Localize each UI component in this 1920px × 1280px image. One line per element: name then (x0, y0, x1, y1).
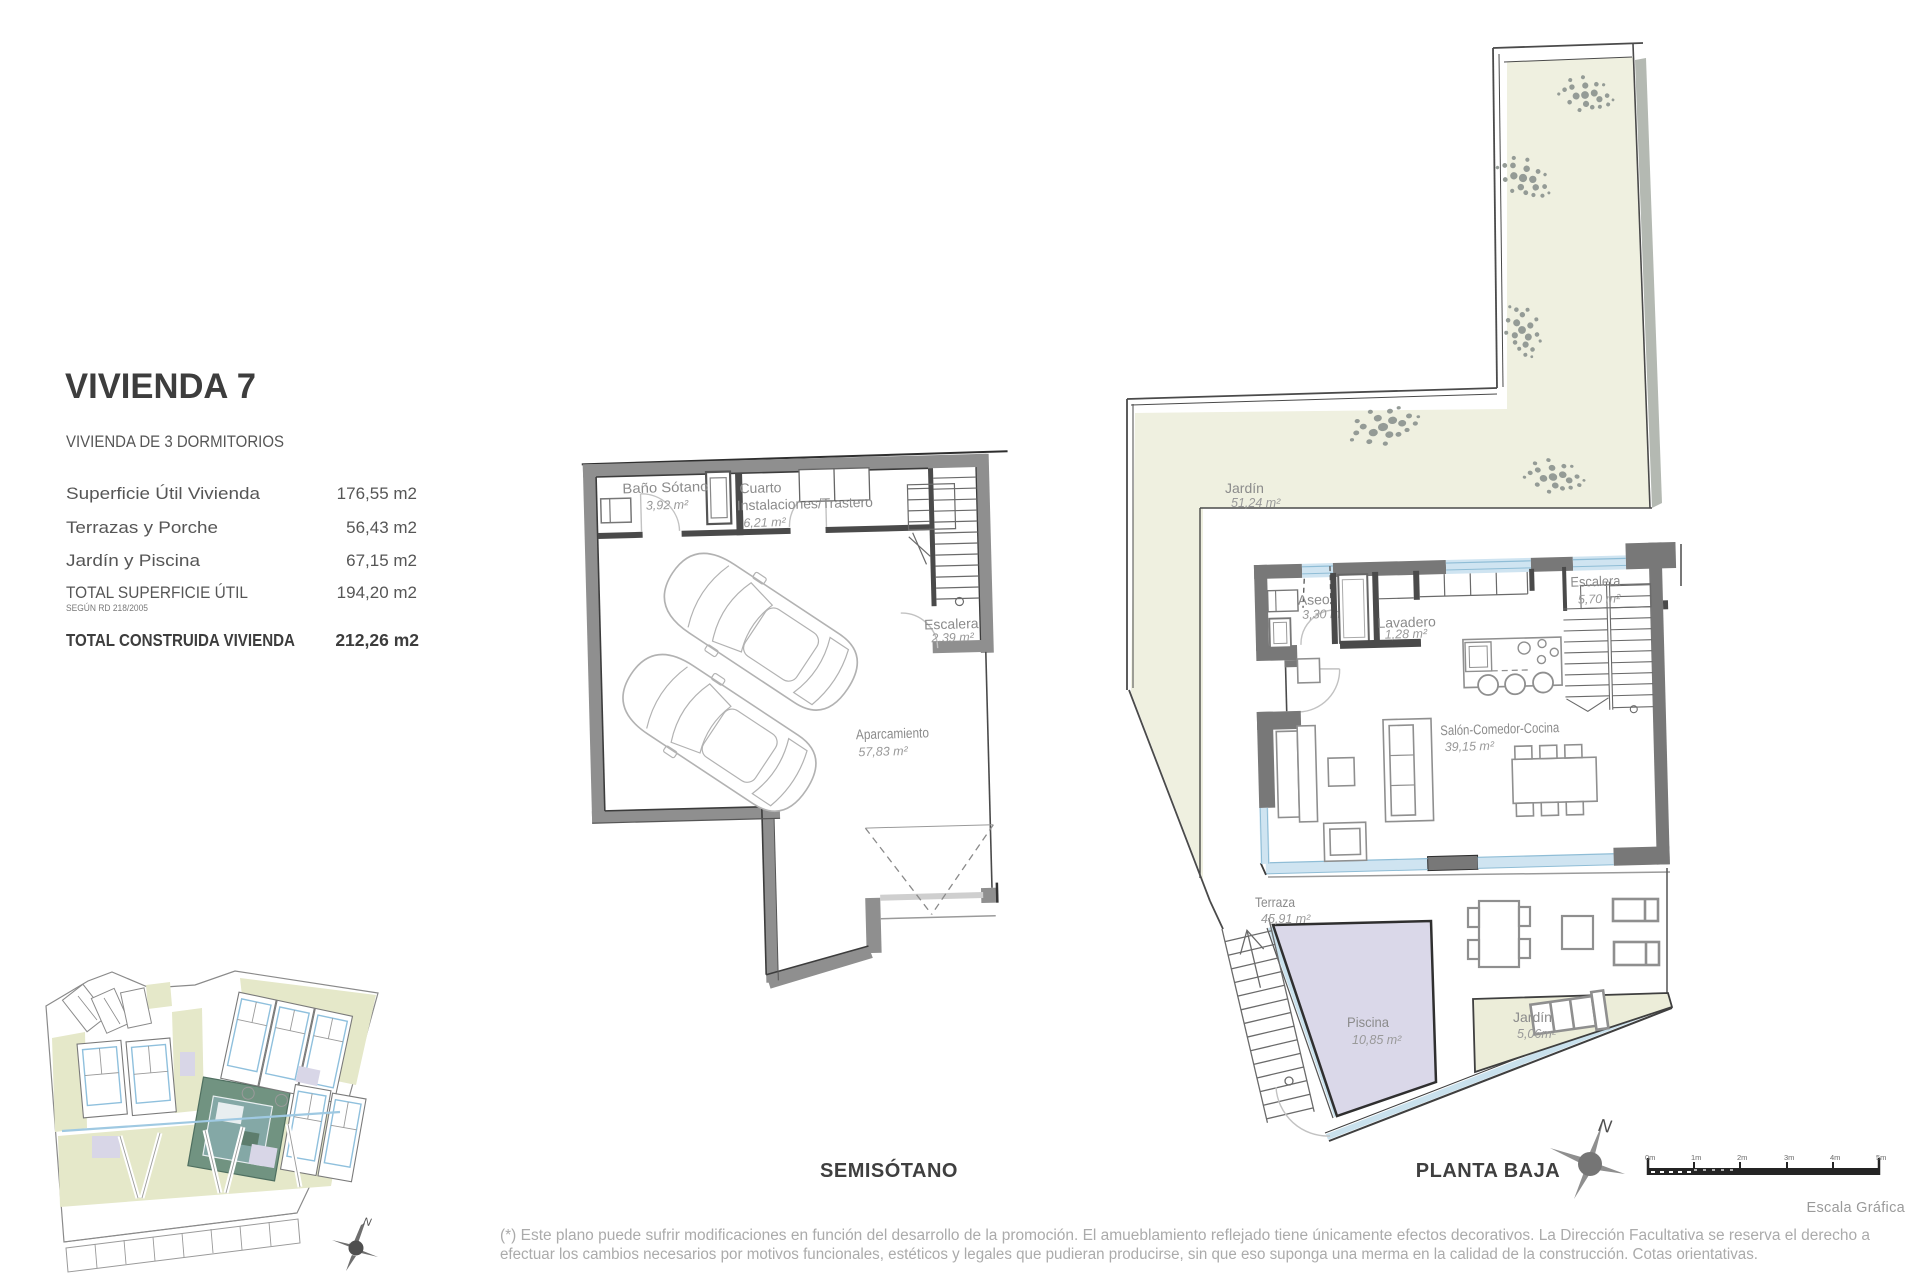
svg-text:194,20 m2: 194,20 m2 (337, 583, 417, 602)
svg-text:Instalaciones/Trastero: Instalaciones/Trastero (737, 494, 874, 514)
svg-text:Cuarto: Cuarto (739, 479, 782, 496)
svg-text:1m: 1m (1691, 1153, 1701, 1162)
svg-text:Aseo: Aseo (1298, 591, 1331, 608)
svg-text:(*) Este plano puede sufrir mo: (*) Este plano puede sufrir modificacion… (500, 1227, 1870, 1244)
svg-text:1,28 m²: 1,28 m² (1385, 627, 1429, 642)
svg-text:0m: 0m (1645, 1153, 1655, 1162)
svg-text:Terrazas y Porche: Terrazas y Porche (66, 518, 218, 537)
svg-text:3m: 3m (1784, 1153, 1794, 1162)
svg-text:Jardín: Jardín (1225, 480, 1264, 496)
svg-text:5m: 5m (1876, 1153, 1886, 1162)
svg-text:TOTAL SUPERFICIE ÚTIL: TOTAL SUPERFICIE ÚTIL (66, 583, 248, 602)
svg-text:51,24 m²: 51,24 m² (1231, 496, 1281, 510)
svg-text:Piscina: Piscina (1347, 1014, 1389, 1030)
svg-text:2m: 2m (1737, 1153, 1747, 1162)
svg-text:Terraza: Terraza (1255, 894, 1295, 910)
svg-text:212,26 m2: 212,26 m2 (335, 630, 419, 650)
svg-text:Aparcamiento: Aparcamiento (856, 724, 930, 742)
svg-text:6,21 m²: 6,21 m² (743, 515, 787, 530)
svg-text:3,92 m²: 3,92 m² (646, 498, 690, 513)
svg-text:efectuar los cambios necesario: efectuar los cambios necesarios por moti… (500, 1246, 1758, 1263)
svg-text:Escala Gráfica: Escala Gráfica (1807, 1200, 1906, 1216)
svg-text:PLANTA BAJA: PLANTA BAJA (1416, 1160, 1560, 1182)
svg-text:Salón-Comedor-Cocina: Salón-Comedor-Cocina (1440, 719, 1560, 738)
svg-text:67,15 m2: 67,15 m2 (346, 551, 417, 570)
svg-text:SEMISÓTANO: SEMISÓTANO (820, 1158, 958, 1182)
svg-text:Superficie Útil Vivienda: Superficie Útil Vivienda (66, 484, 261, 503)
svg-text:56,43 m2: 56,43 m2 (346, 518, 417, 537)
svg-text:VIVIENDA 7: VIVIENDA 7 (65, 367, 256, 406)
svg-text:N: N (362, 1216, 372, 1229)
svg-text:Jardín: Jardín (1513, 1009, 1552, 1025)
svg-text:5,06m²: 5,06m² (1517, 1027, 1557, 1041)
svg-text:Jardín y Piscina: Jardín y Piscina (66, 551, 201, 570)
svg-text:Escalera: Escalera (1570, 572, 1621, 589)
svg-text:VIVIENDA DE 3 DORMITORIOS: VIVIENDA DE 3 DORMITORIOS (66, 432, 284, 451)
svg-text:39,15 m²: 39,15 m² (1445, 739, 1496, 754)
svg-text:57,83 m²: 57,83 m² (858, 744, 909, 759)
svg-text:176,55 m2: 176,55 m2 (337, 484, 417, 503)
svg-text:N: N (1597, 1115, 1614, 1137)
svg-text:2,39 m²: 2,39 m² (930, 630, 975, 645)
svg-text:Baño Sótano: Baño Sótano (622, 478, 709, 496)
svg-text:SEGÚN RD 218/2005: SEGÚN RD 218/2005 (66, 603, 148, 614)
svg-text:4m: 4m (1830, 1153, 1840, 1162)
svg-text:5,70 m²: 5,70 m² (1578, 591, 1622, 606)
svg-text:45,91 m²: 45,91 m² (1261, 912, 1311, 926)
svg-text:TOTAL CONSTRUIDA VIVIENDA: TOTAL CONSTRUIDA VIVIENDA (66, 630, 295, 650)
svg-text:10,85 m²: 10,85 m² (1352, 1033, 1402, 1047)
